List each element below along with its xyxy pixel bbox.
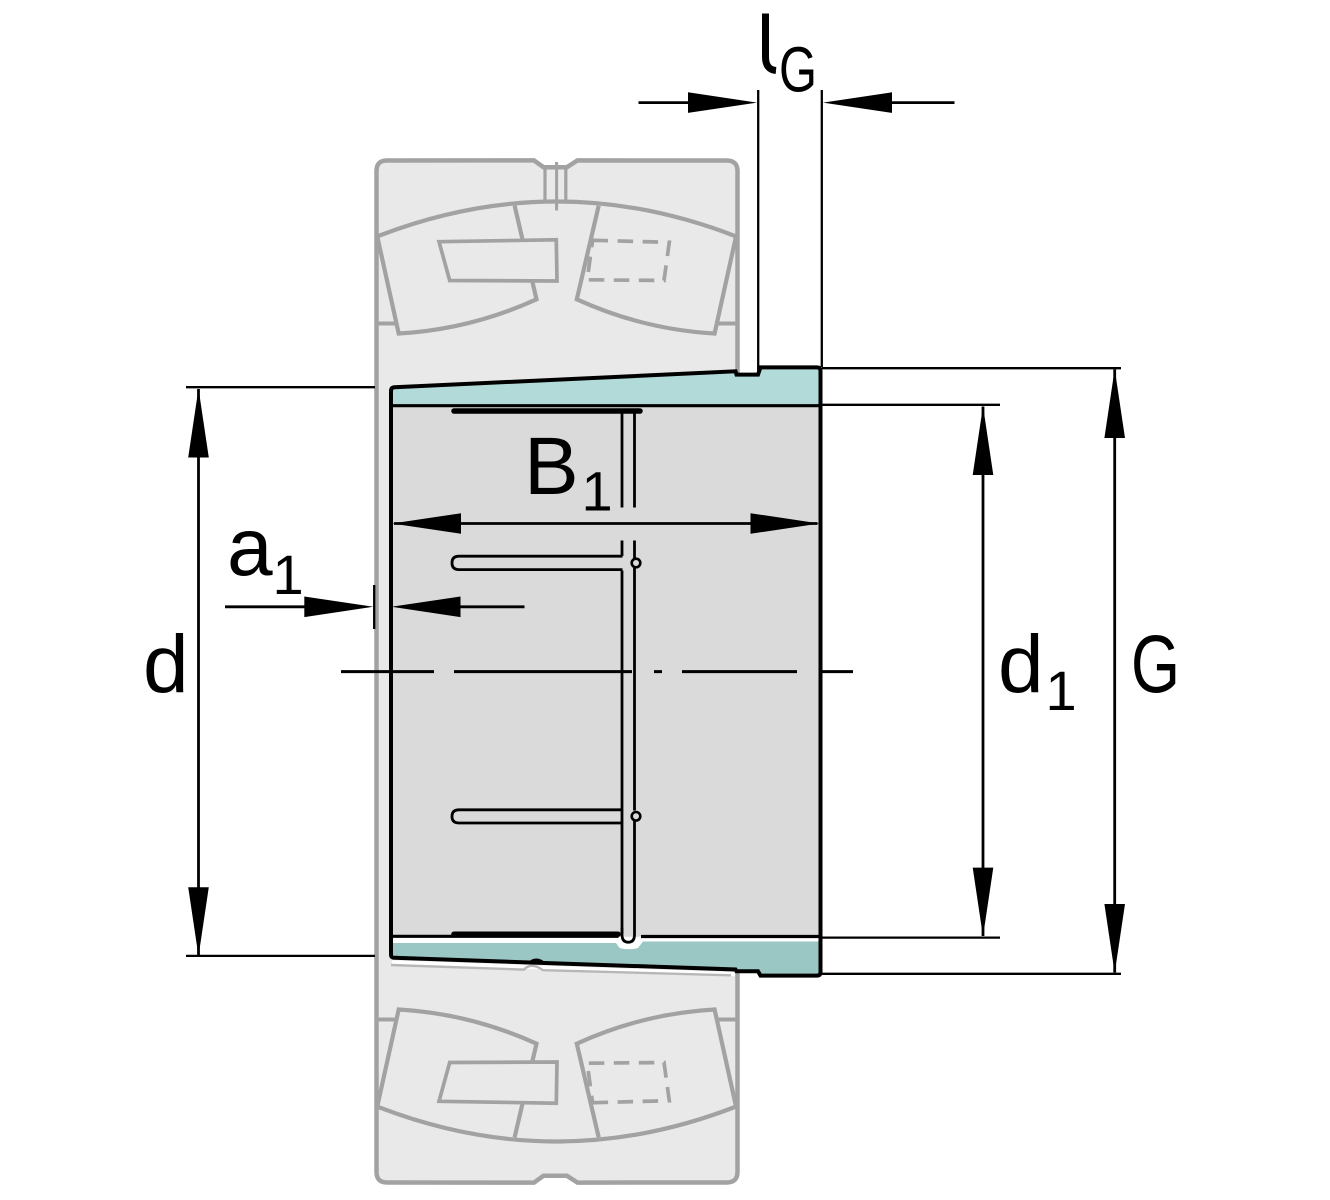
svg-text:G: G xyxy=(779,34,817,106)
svg-text:d: d xyxy=(998,619,1044,710)
svg-text:1: 1 xyxy=(582,460,613,523)
svg-text:d: d xyxy=(143,619,189,710)
svg-text:a: a xyxy=(227,502,273,593)
svg-text:G: G xyxy=(1131,619,1180,710)
svg-text:1: 1 xyxy=(273,543,304,606)
svg-text:B: B xyxy=(524,421,579,512)
svg-text:1: 1 xyxy=(1046,659,1077,722)
